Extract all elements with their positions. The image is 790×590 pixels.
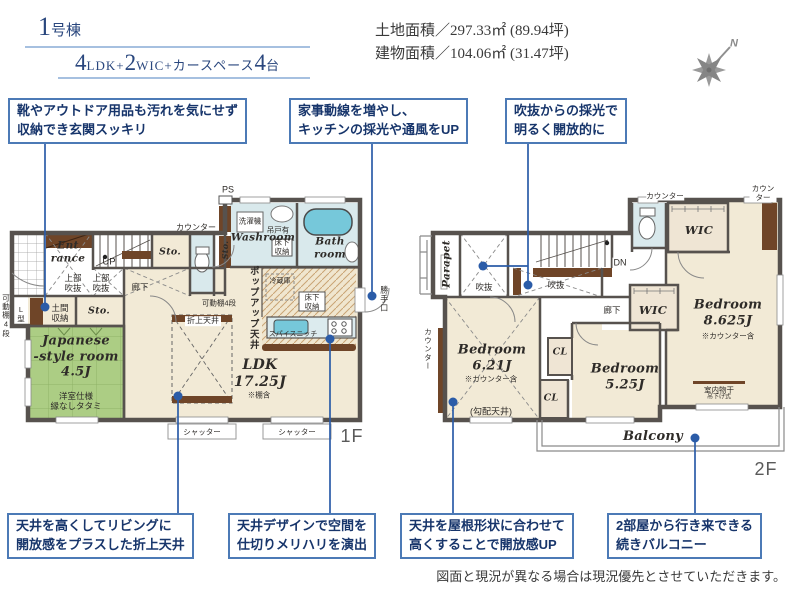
label-shutter2: シャッター xyxy=(278,428,316,437)
label-counter1-2f: カウンター xyxy=(646,192,684,201)
label-parapet: Parapet xyxy=(441,240,454,288)
label-cl1: CL xyxy=(553,346,568,357)
spec-s2: WIC+カースペース xyxy=(136,58,254,73)
label-back-door: 勝手口 xyxy=(379,286,389,313)
label-sto-top: Sto. xyxy=(159,246,181,257)
label-bedroom2-note: ※カウンター含 xyxy=(465,375,518,384)
label-japanese-room: Japanese -style room 4.5J xyxy=(33,334,118,381)
floorplan-drawing xyxy=(0,0,790,590)
label-sto-vertical: Sto. xyxy=(221,241,231,260)
label-void1-2f: 吹抜 xyxy=(475,282,492,292)
callout-balcony: 2部屋から行き来できる 続きバルコニー xyxy=(607,513,762,559)
label-bedroom2: Bedroom 6.21J xyxy=(458,342,526,373)
callout-entrance-storage: 靴やアウトドア用品も汚れを気にせず 収納でき玄関スッキリ xyxy=(8,98,247,144)
label-counter-1f: カウンター xyxy=(176,223,216,233)
label-ps: PS xyxy=(222,185,234,196)
label-sto2: Sto. xyxy=(88,305,110,316)
spec-s1: LDK+ xyxy=(87,58,125,73)
label-1f: 1F xyxy=(340,426,363,448)
label-ldk-note: ※棚含 xyxy=(248,391,271,400)
label-washer: 洗濯機 xyxy=(239,217,262,226)
compass-icon xyxy=(685,46,733,94)
label-doma-storage: 土間 収納 xyxy=(51,303,68,323)
label-entrance: Ent rance xyxy=(51,239,86,264)
label-void1-1f: 上部 吹抜 xyxy=(64,273,81,293)
label-bedroom1: Bedroom 8.625J xyxy=(694,297,762,328)
title-divider-1 xyxy=(25,46,310,48)
label-up: UP xyxy=(102,256,115,267)
label-wic1: WIC xyxy=(685,224,713,238)
label-hallway-2f: 廊下 xyxy=(603,305,620,315)
label-void2-2f: 吹抜 xyxy=(547,280,564,290)
floorplan-page: 1号棟 4LDK+2WIC+カースペース4台 土地面積／297.33㎡ (89.… xyxy=(0,0,790,590)
compass-north-label: N xyxy=(730,37,738,50)
unit-spec: 4LDK+2WIC+カースペース4台 xyxy=(75,50,280,76)
label-ldk: LDK 17.25J xyxy=(234,357,286,391)
title-divider-2 xyxy=(58,77,310,79)
label-fridge: 冷蔵庫 xyxy=(270,278,291,286)
label-balcony: Balcony xyxy=(623,429,683,445)
label-dn: DN xyxy=(613,258,628,269)
callout-void-light: 吹抜からの採光で 明るく開放的に xyxy=(505,98,627,144)
callout-kitchen-flow: 家事動線を増やし、 キッチンの採光や通風をUP xyxy=(289,98,468,144)
label-counter-left-2f: カウンター xyxy=(424,328,433,371)
disclaimer: 図面と現況が異なる場合は現況優先とさせていただきます。 xyxy=(436,566,786,585)
label-void2-1f: 上部 吹抜 xyxy=(92,273,109,293)
spec-n1: 4 xyxy=(75,50,87,75)
label-hallway-1f: 廊下 xyxy=(131,282,148,292)
label-indoor-drying: 室内物干 xyxy=(704,386,734,395)
area-info: 土地面積／297.33㎡ (89.94坪)建物面積／104.06㎡ (31.47… xyxy=(375,20,569,67)
label-japanese-note: 洋室仕様 縁なしタタミ xyxy=(50,391,101,411)
unit-number: 1 xyxy=(38,12,51,41)
label-shelf-mid: 可動棚4段 xyxy=(202,299,236,308)
label-popup-ceiling: ポップアップ天井 xyxy=(247,266,258,350)
label-shelf-left: 可動棚4段 xyxy=(2,294,11,338)
callout-ceiling-design: 天井デザインで空間を 仕切りメリハリを演出 xyxy=(228,513,376,559)
label-2f: 2F xyxy=(754,459,777,481)
label-shutter1: シャッター xyxy=(183,428,221,437)
label-underfloor-wash: 床下 収納 xyxy=(275,238,290,256)
unit-title: 1号棟 xyxy=(38,12,81,42)
label-l-type: L型 xyxy=(17,305,26,324)
building-area: 建物面積／104.06㎡ (31.47坪) xyxy=(375,46,569,62)
label-sloped-ceiling: (勾配天井) xyxy=(470,407,512,418)
label-bedroom1-note: ※カウンター含 xyxy=(702,332,755,341)
spec-n2: 2 xyxy=(125,50,137,75)
label-cl2: CL xyxy=(544,392,559,403)
label-indoor-drying-sub: 吊下げ式 xyxy=(707,394,731,401)
callout-coffered-ceiling: 天井を高くしてリビングに 開放感をプラスした折上天井 xyxy=(7,513,194,559)
label-spice-niche: スパイスニッチ xyxy=(269,331,318,339)
unit-suffix: 号棟 xyxy=(51,23,81,39)
label-bedroom3: Bedroom 5.25J xyxy=(591,361,659,392)
spec-s3: 台 xyxy=(266,58,280,73)
label-wic2: WIC xyxy=(639,304,667,318)
land-area: 土地面積／297.33㎡ (89.94坪) xyxy=(375,23,569,39)
spec-n3: 4 xyxy=(254,50,266,75)
label-bathroom: Bath room xyxy=(314,235,346,260)
label-counter2-2f: カウンター xyxy=(750,184,777,202)
callout-sloped-ceiling: 天井を屋根形状に合わせて 高くすることで開放感UP xyxy=(400,513,574,559)
label-coffered-ceiling: 折上天井 xyxy=(185,316,221,326)
label-underfloor-kitchen: 床下 収納 xyxy=(305,293,320,311)
